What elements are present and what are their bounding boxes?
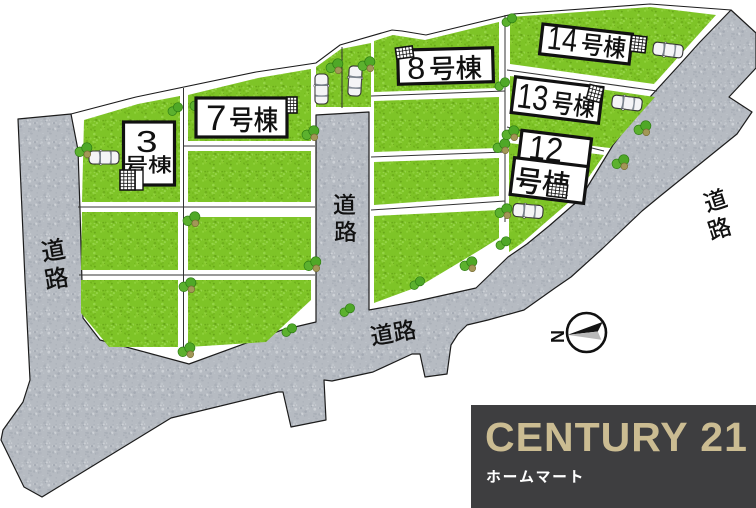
svg-text:13: 13 xyxy=(515,75,551,118)
svg-text:3: 3 xyxy=(136,125,158,159)
svg-text:12: 12 xyxy=(527,128,565,170)
svg-text:CENTURY 21: CENTURY 21 xyxy=(485,414,748,460)
svg-text:7: 7 xyxy=(206,99,226,138)
svg-text:N: N xyxy=(548,330,568,343)
svg-text:14: 14 xyxy=(545,20,579,59)
